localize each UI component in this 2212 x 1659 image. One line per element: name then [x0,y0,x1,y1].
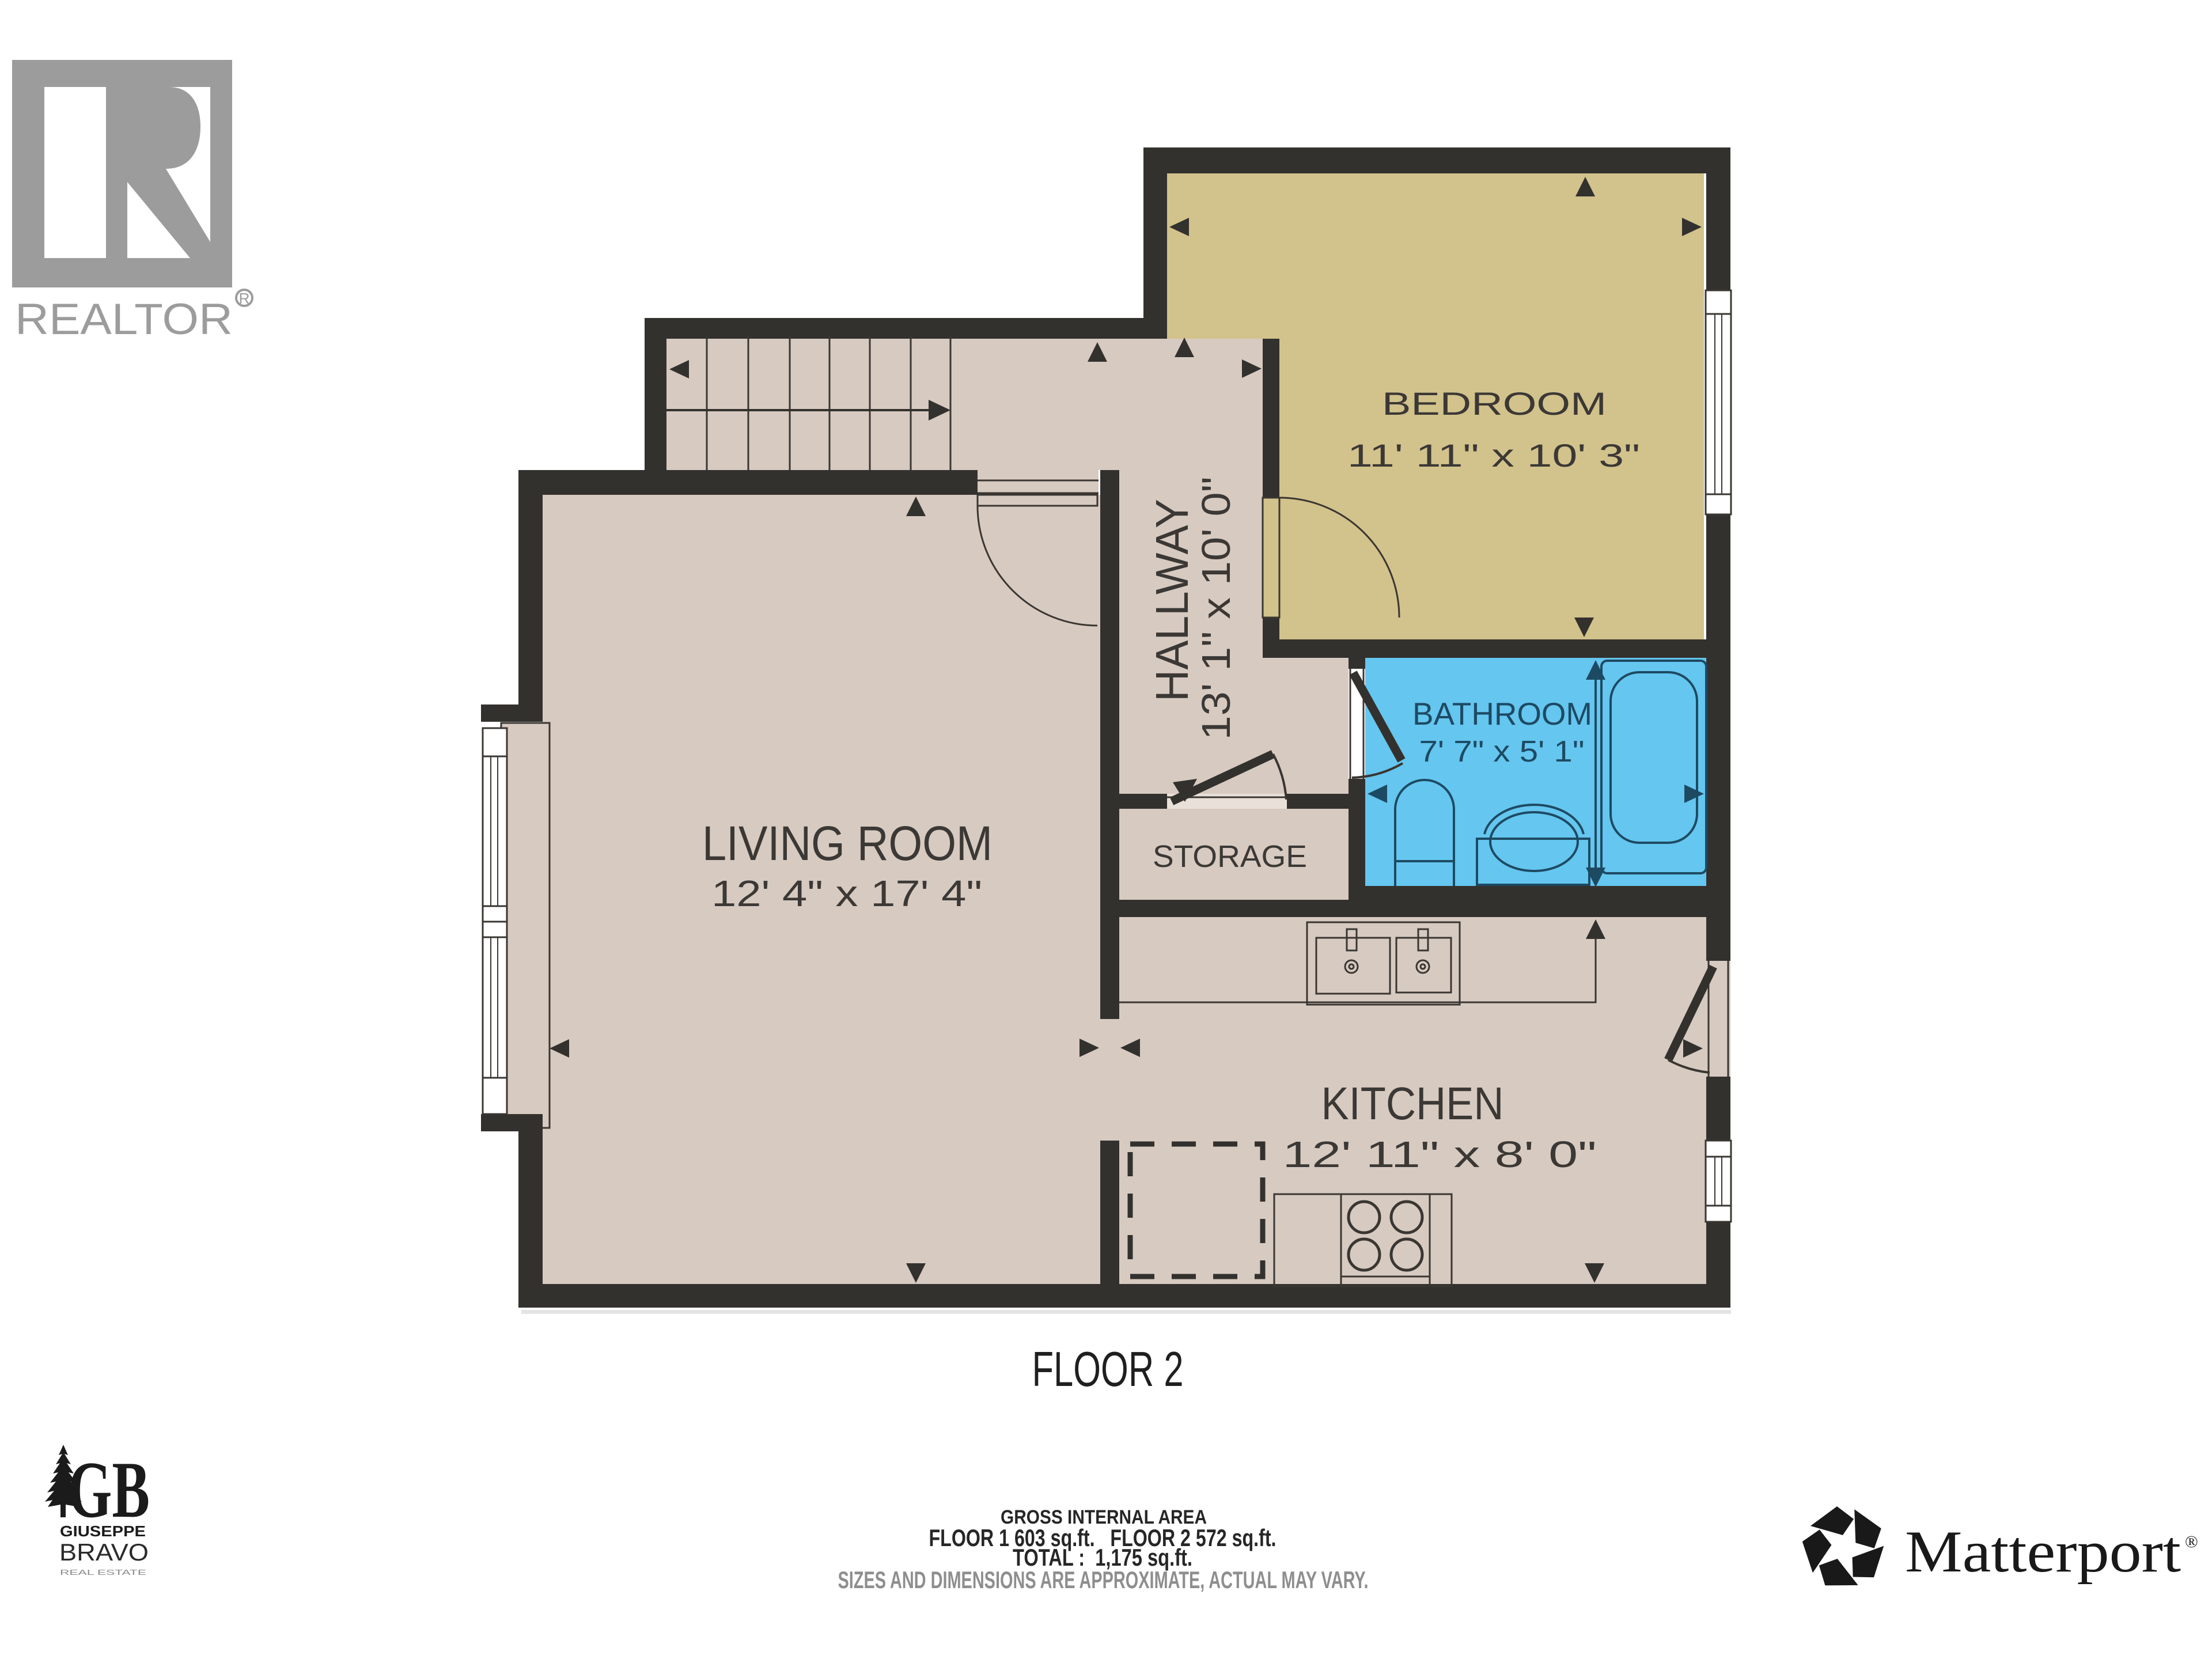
svg-text:BRAVO: BRAVO [59,1539,149,1566]
svg-text:13' 1" x 10' 0": 13' 1" x 10' 0" [1194,477,1238,740]
svg-text:R: R [239,290,250,307]
svg-text:STORAGE: STORAGE [1153,839,1307,874]
svg-text:FLOOR 2: FLOOR 2 [1032,1342,1184,1397]
svg-text:HALLWAY: HALLWAY [1146,499,1198,702]
svg-text:GB: GB [68,1445,150,1535]
svg-text:LIVING ROOM: LIVING ROOM [702,816,993,870]
svg-text:REALTOR: REALTOR [15,295,233,344]
svg-text:GIUSEPPE: GIUSEPPE [60,1522,146,1540]
svg-text:SIZES AND DIMENSIONS ARE APPRO: SIZES AND DIMENSIONS ARE APPROXIMATE, AC… [838,1566,1369,1593]
svg-text:Matterport: Matterport [1905,1519,2181,1585]
svg-text:12' 11" x 8' 0": 12' 11" x 8' 0" [1283,1134,1597,1175]
svg-text:REAL ESTATE: REAL ESTATE [60,1568,147,1577]
svg-text:®: ® [2185,1532,2198,1551]
svg-text:KITCHEN: KITCHEN [1321,1078,1504,1129]
svg-text:12' 4" x 17' 4": 12' 4" x 17' 4" [711,873,982,914]
svg-text:7' 7" x 5' 1": 7' 7" x 5' 1" [1419,735,1585,768]
svg-text:BEDROOM: BEDROOM [1382,385,1607,422]
svg-text:11' 11" x 10' 3": 11' 11" x 10' 3" [1347,437,1640,474]
svg-text:BATHROOM: BATHROOM [1412,696,1592,732]
